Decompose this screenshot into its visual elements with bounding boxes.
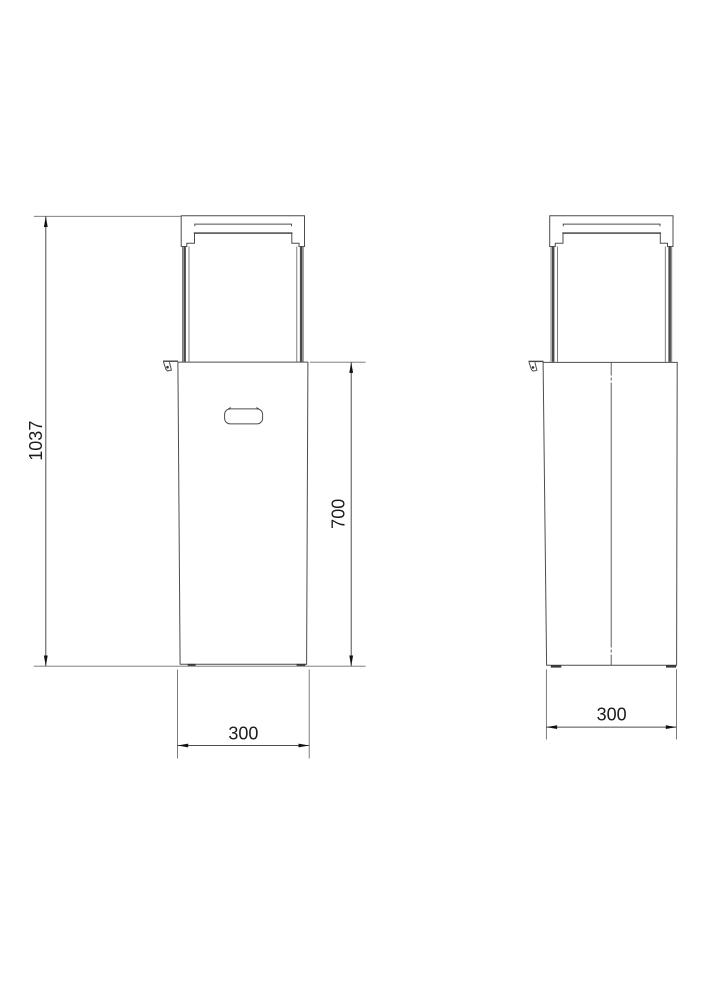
svg-text:300: 300 xyxy=(228,724,258,744)
svg-text:700: 700 xyxy=(328,499,348,529)
svg-text:1037: 1037 xyxy=(26,421,46,461)
svg-text:300: 300 xyxy=(597,705,627,725)
